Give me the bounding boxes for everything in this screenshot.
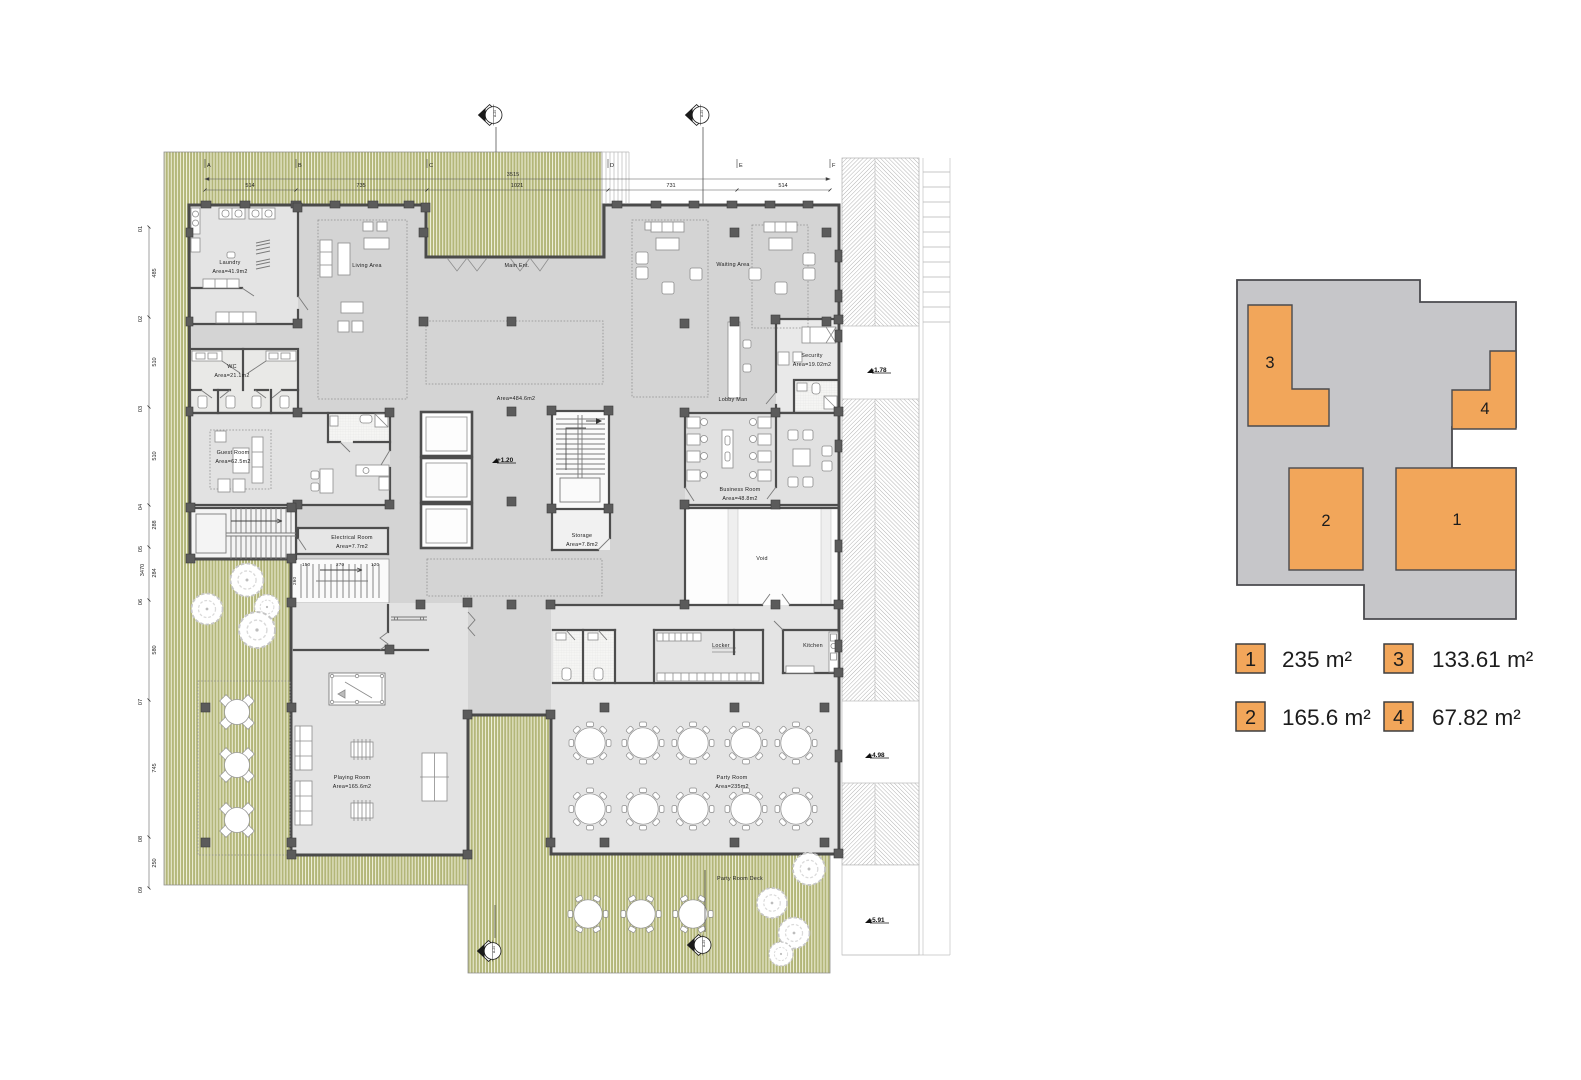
- svg-text:270: 270: [336, 562, 345, 567]
- svg-text:WC: WC: [227, 364, 236, 370]
- svg-text:514: 514: [778, 183, 787, 189]
- svg-text:514: 514: [245, 183, 254, 189]
- svg-text:C: C: [429, 163, 433, 169]
- svg-text:1: 1: [1452, 511, 1461, 529]
- svg-text:E: E: [739, 163, 743, 169]
- svg-text:Party Room: Party Room: [717, 775, 748, 781]
- svg-text:235 m²: 235 m²: [1282, 647, 1353, 672]
- svg-text:09: 09: [138, 887, 144, 893]
- svg-text:D: D: [610, 163, 614, 169]
- svg-text:Area=21.1m2: Area=21.1m2: [214, 373, 249, 379]
- svg-text:288: 288: [152, 520, 158, 529]
- svg-text:08: 08: [138, 836, 144, 842]
- svg-text:Area=48.8m2: Area=48.8m2: [722, 496, 757, 502]
- svg-text:250: 250: [152, 858, 158, 867]
- svg-text:2: 2: [1321, 512, 1330, 530]
- svg-text:04: 04: [138, 504, 144, 510]
- svg-text:F: F: [832, 163, 836, 169]
- svg-text:Area=7.8m2: Area=7.8m2: [566, 542, 598, 548]
- svg-text:3: 3: [1265, 354, 1274, 372]
- svg-text:Living Area: Living Area: [352, 263, 381, 269]
- svg-text:67.82 m²: 67.82 m²: [1432, 705, 1521, 730]
- svg-text:B: B: [298, 163, 302, 169]
- svg-text:Void: Void: [756, 556, 768, 562]
- svg-text:Locker: Locker: [712, 643, 730, 649]
- svg-text:580: 580: [152, 645, 158, 654]
- svg-text:Waiting Area: Waiting Area: [716, 262, 749, 268]
- svg-text:A: A: [207, 163, 211, 169]
- svg-text:Playing Room: Playing Room: [334, 775, 371, 781]
- svg-text:3515: 3515: [507, 172, 519, 178]
- svg-text:Lobby Man: Lobby Man: [719, 397, 748, 403]
- svg-text:745: 745: [152, 763, 158, 772]
- svg-text:Area=19.02m2: Area=19.02m2: [793, 362, 832, 368]
- svg-text:731: 731: [666, 183, 675, 189]
- svg-text:Guest Room: Guest Room: [217, 450, 250, 456]
- svg-text:06: 06: [138, 599, 144, 605]
- svg-text:3: 3: [1393, 649, 1404, 671]
- svg-text:1: 1: [1245, 649, 1256, 671]
- svg-text:Area=62.5m2: Area=62.5m2: [215, 459, 250, 465]
- svg-text:284: 284: [152, 568, 158, 577]
- svg-text:Area=484.6m2: Area=484.6m2: [497, 396, 536, 402]
- svg-text:01: 01: [138, 226, 144, 232]
- svg-text:Area=235m2: Area=235m2: [715, 784, 749, 790]
- svg-text:510: 510: [152, 357, 158, 366]
- svg-text:485: 485: [152, 268, 158, 277]
- svg-text:150: 150: [302, 562, 311, 567]
- svg-text:4: 4: [1393, 707, 1404, 729]
- svg-text:510: 510: [152, 451, 158, 460]
- svg-text:2: 2: [1245, 707, 1256, 729]
- svg-text:Party Room Deck: Party Room Deck: [717, 876, 763, 882]
- svg-text:07: 07: [138, 699, 144, 705]
- svg-text:Laundry: Laundry: [219, 260, 240, 266]
- svg-text:Storage: Storage: [572, 533, 593, 539]
- svg-text:4: 4: [1480, 400, 1489, 418]
- svg-text:Area=7.7m2: Area=7.7m2: [336, 544, 368, 550]
- svg-text:Security: Security: [801, 353, 823, 359]
- svg-text:Kitchen: Kitchen: [803, 643, 823, 649]
- svg-text:Main Ent.: Main Ent.: [504, 263, 529, 269]
- svg-text:260: 260: [292, 576, 297, 585]
- svg-text:3470: 3470: [140, 564, 146, 576]
- svg-text:Area=165.6m2: Area=165.6m2: [333, 784, 372, 790]
- svg-text:120: 120: [371, 562, 380, 567]
- svg-text:Electrical Room: Electrical Room: [331, 535, 373, 541]
- svg-text:133.61 m²: 133.61 m²: [1432, 647, 1534, 672]
- svg-text:Business Room: Business Room: [719, 487, 760, 493]
- svg-text:735: 735: [356, 183, 365, 189]
- svg-text:05: 05: [138, 546, 144, 552]
- svg-text:165.6 m²: 165.6 m²: [1282, 705, 1371, 730]
- svg-text:Area=41.9m2: Area=41.9m2: [212, 269, 247, 275]
- svg-text:02: 02: [138, 316, 144, 322]
- svg-text:03: 03: [138, 406, 144, 412]
- svg-text:1021: 1021: [511, 183, 523, 189]
